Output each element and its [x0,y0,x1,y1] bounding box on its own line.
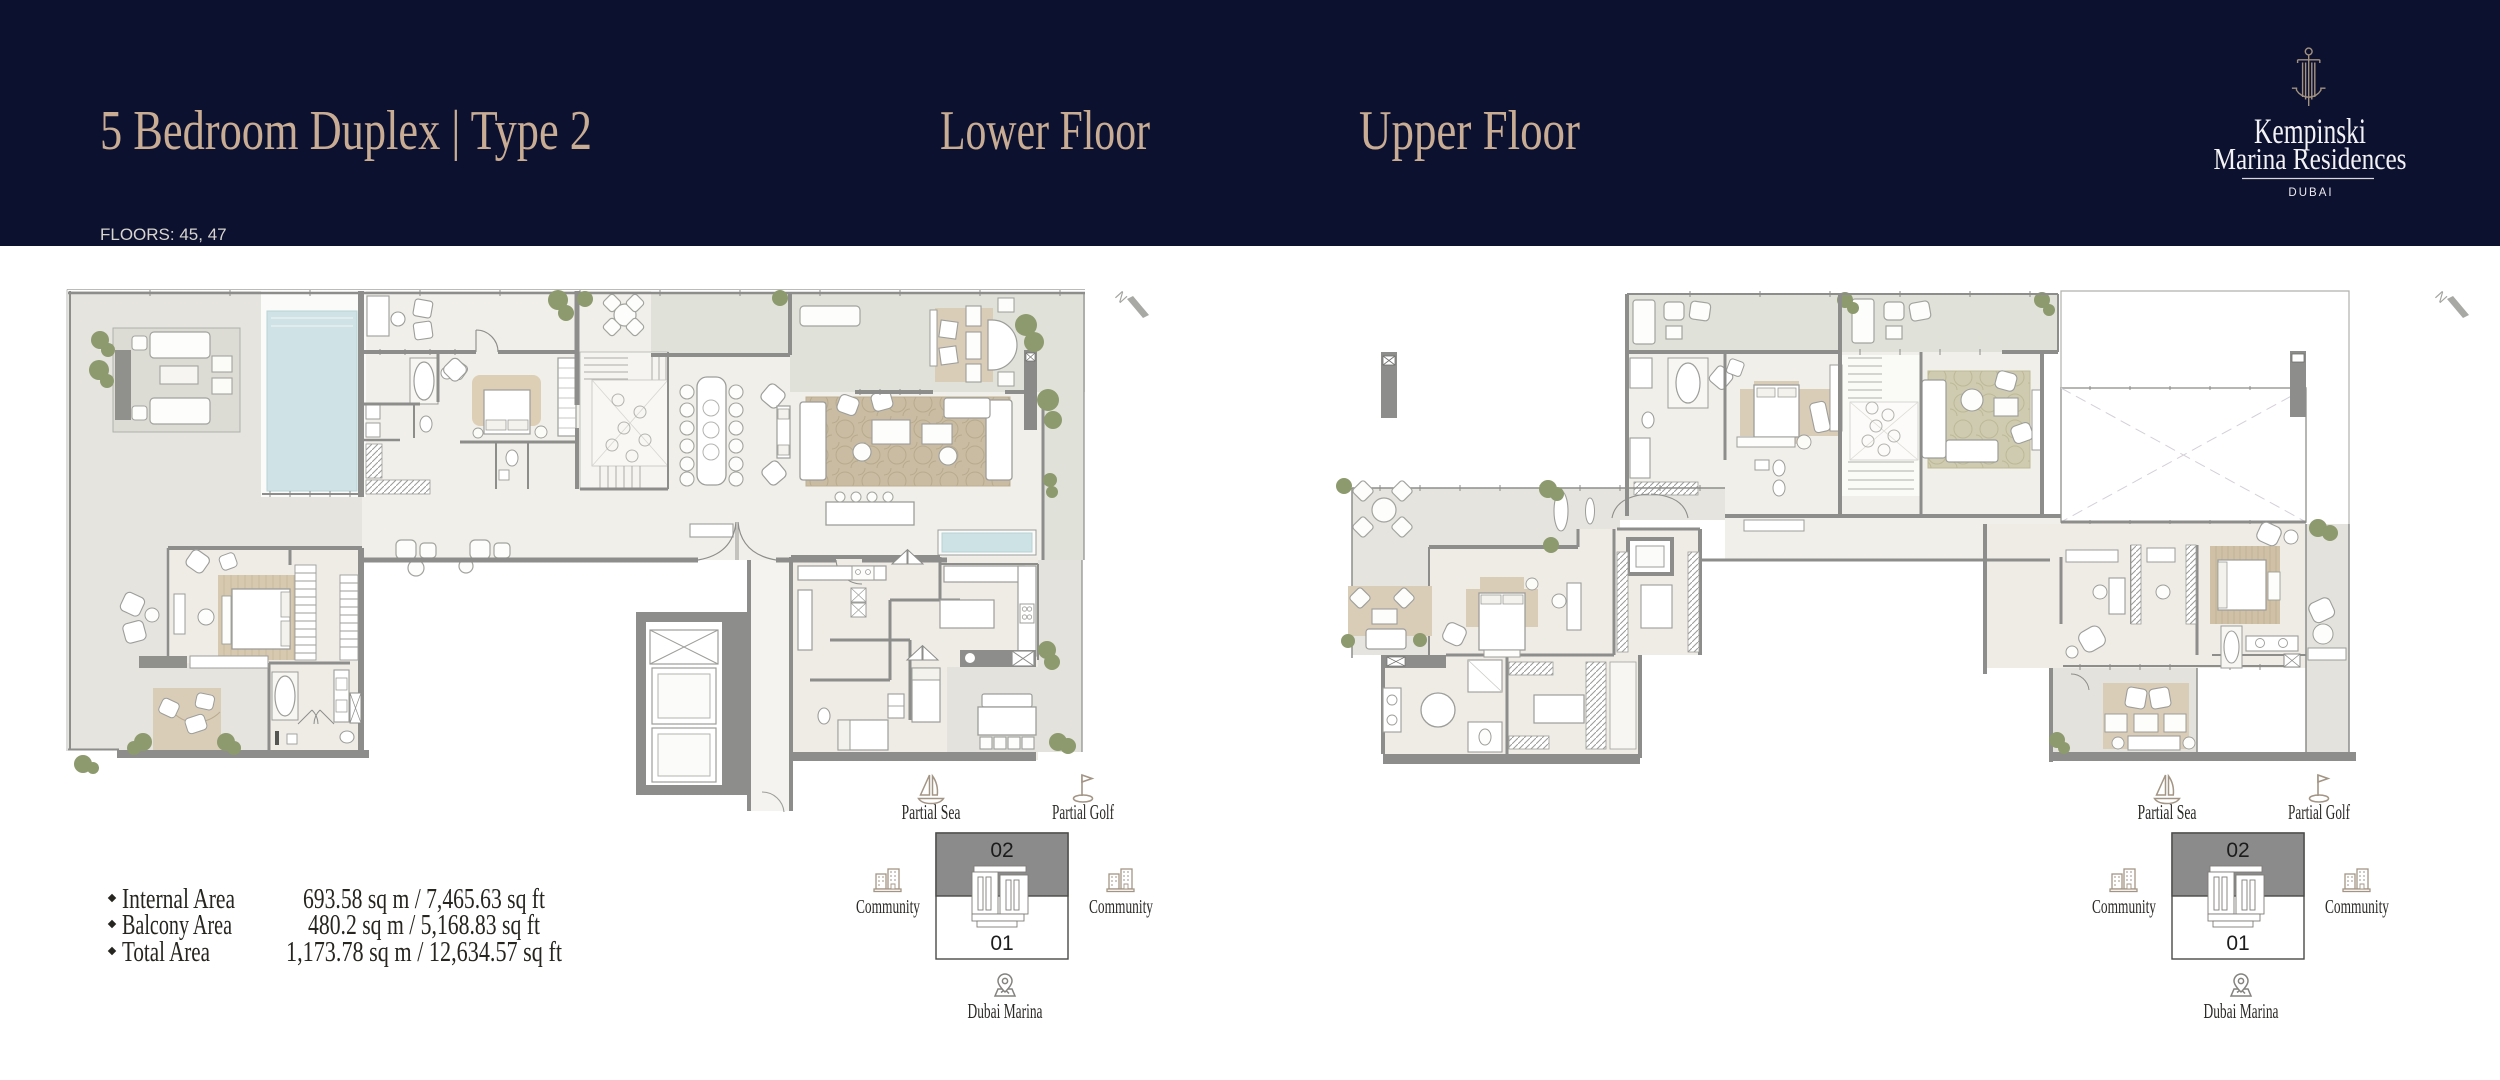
svg-text:Partial Sea: Partial Sea [2138,800,2197,824]
svg-text:01: 01 [990,932,1013,955]
svg-text:FLOORS: 45, 47: FLOORS: 45, 47 [100,225,227,244]
svg-text:02: 02 [2226,839,2249,862]
svg-text:DUBAI: DUBAI [2288,187,2333,199]
svg-text:Partial Golf: Partial Golf [1052,800,1114,824]
svg-text:Total Area: Total Area [122,937,210,968]
svg-text:Community: Community [1089,896,1153,918]
svg-text:5 Bedroom Duplex | Type 2: 5 Bedroom Duplex | Type 2 [100,100,592,162]
svg-text:Partial Sea: Partial Sea [902,800,961,824]
svg-text:Partial Golf: Partial Golf [2288,800,2350,824]
svg-text:1,173.78 sq m / 12,634.57 sq f: 1,173.78 sq m / 12,634.57 sq ft [286,937,562,968]
svg-text:Dubai Marina: Dubai Marina [968,999,1043,1023]
svg-text:Marina Residences: Marina Residences [2214,141,2407,176]
svg-text:Community: Community [2325,896,2389,918]
svg-text:01: 01 [2226,932,2249,955]
svg-text:Dubai Marina: Dubai Marina [2204,999,2279,1023]
svg-text:Community: Community [2092,896,2156,918]
svg-text:Lower Floor: Lower Floor [940,100,1150,162]
svg-text:Community: Community [856,896,920,918]
svg-text:02: 02 [990,839,1013,862]
svg-text:Upper Floor: Upper Floor [1359,100,1580,162]
